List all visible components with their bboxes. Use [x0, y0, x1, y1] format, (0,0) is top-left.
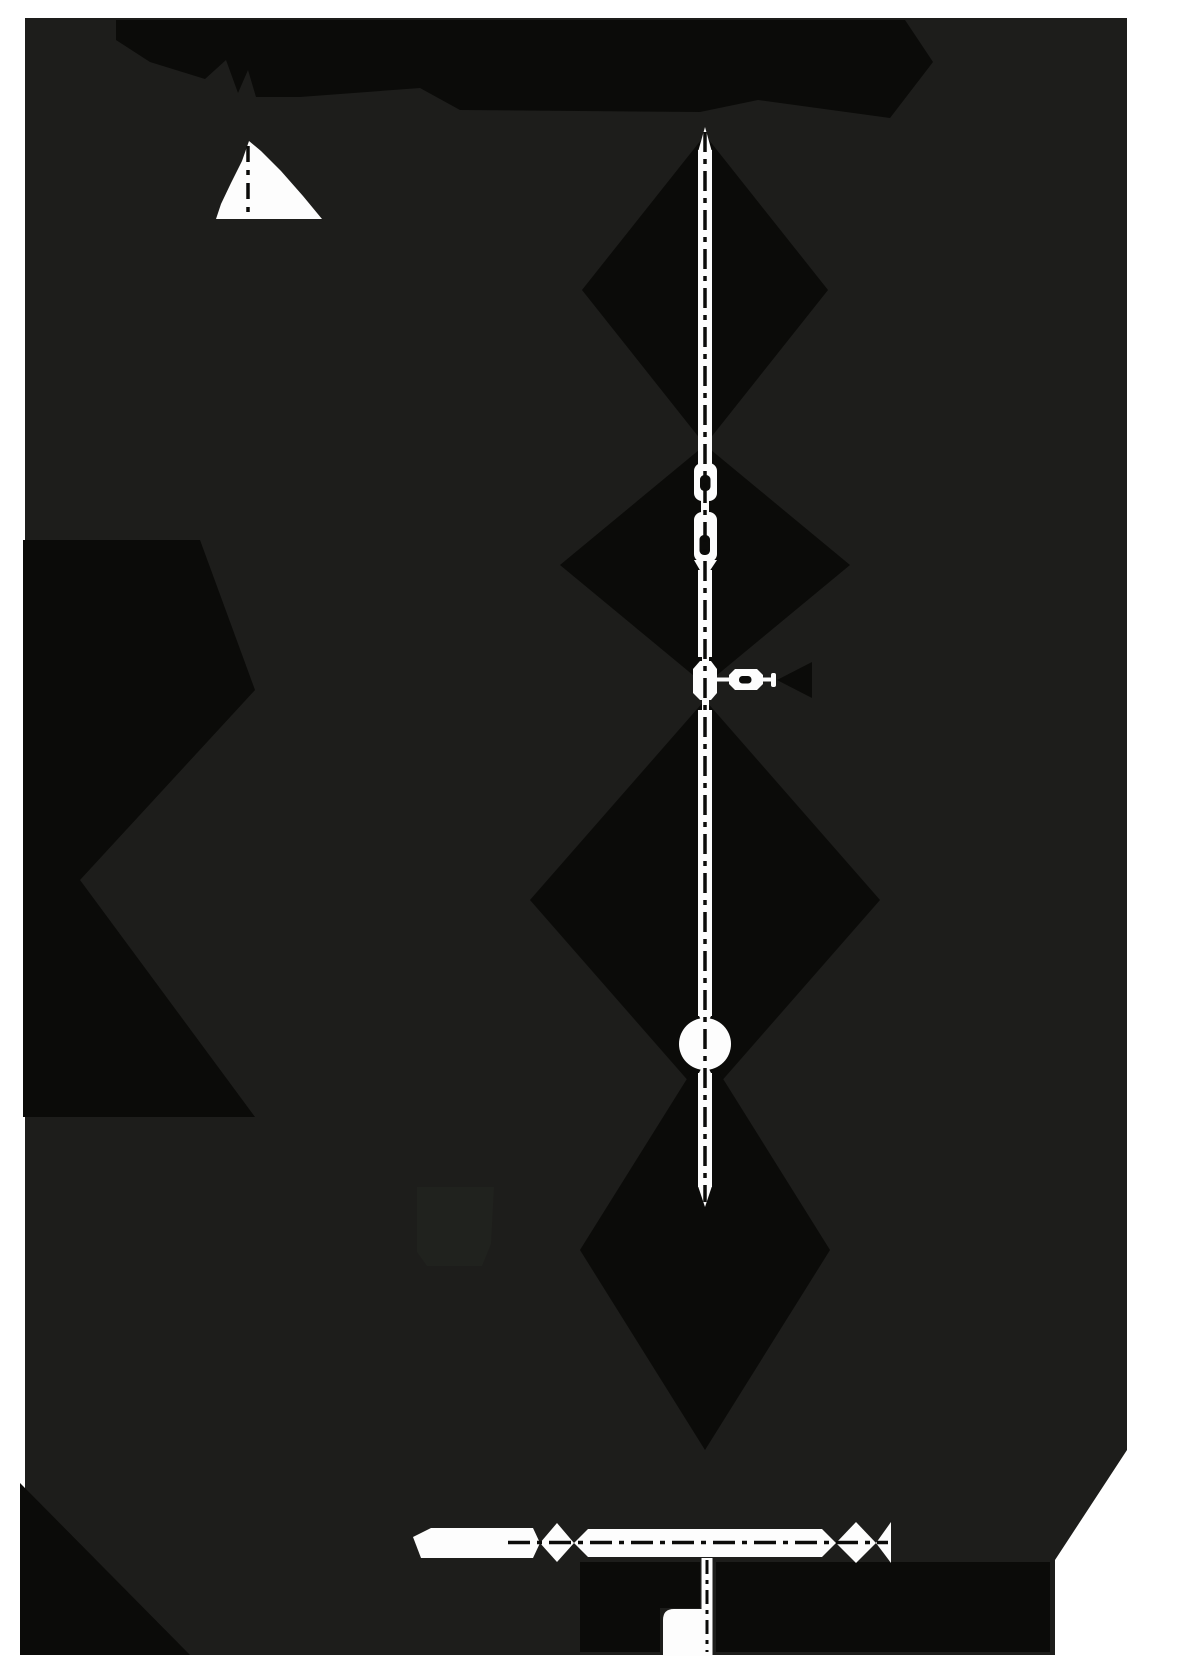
faint-square-patch	[417, 1187, 494, 1266]
handle-end-cap	[771, 673, 776, 687]
spindle-bottom-rod	[698, 1073, 712, 1187]
figure-background	[25, 18, 1127, 1655]
page	[0, 0, 1181, 1680]
bottom-white-patch	[663, 1609, 702, 1656]
figure-svg	[0, 0, 1181, 1680]
handle-knob-slot	[739, 676, 752, 684]
shadow-under-spindle-right	[716, 1562, 1050, 1652]
